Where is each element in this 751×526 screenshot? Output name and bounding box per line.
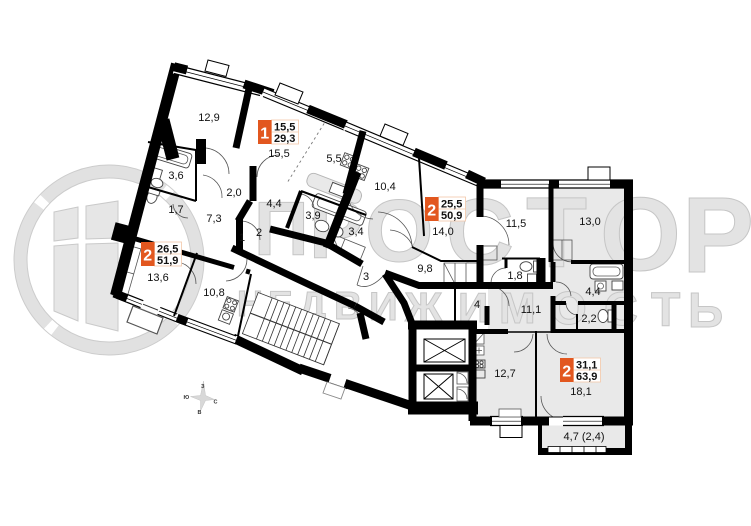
svg-text:26,5: 26,5: [157, 244, 178, 256]
svg-text:2: 2: [143, 248, 152, 265]
svg-text:4: 4: [474, 299, 480, 311]
svg-text:1: 1: [239, 232, 245, 244]
svg-text:15,5: 15,5: [274, 122, 295, 134]
svg-text:2: 2: [427, 203, 436, 220]
svg-text:7,3: 7,3: [206, 213, 221, 225]
svg-text:3,6: 3,6: [168, 170, 183, 182]
svg-text:2: 2: [256, 227, 262, 239]
svg-text:2: 2: [562, 364, 571, 381]
svg-text:10,8: 10,8: [203, 287, 224, 299]
svg-text:2,2: 2,2: [581, 313, 596, 325]
svg-text:13,0: 13,0: [579, 216, 600, 228]
svg-text:31,1: 31,1: [576, 360, 597, 372]
svg-text:1,8: 1,8: [507, 270, 522, 282]
svg-text:3,4: 3,4: [348, 226, 363, 238]
svg-text:29,3: 29,3: [274, 133, 295, 145]
svg-text:Ю: Ю: [184, 395, 190, 401]
svg-text:1: 1: [260, 126, 269, 143]
svg-text:14,0: 14,0: [432, 226, 453, 238]
svg-text:10,4: 10,4: [374, 181, 395, 193]
svg-text:51,9: 51,9: [157, 255, 178, 267]
svg-text:18,1: 18,1: [570, 386, 591, 398]
svg-text:В: В: [198, 410, 202, 416]
svg-text:З: З: [201, 384, 205, 390]
svg-text:1,7: 1,7: [168, 204, 183, 216]
svg-text:12,9: 12,9: [198, 112, 219, 124]
svg-text:50,9: 50,9: [441, 210, 462, 222]
svg-text:5,5: 5,5: [326, 153, 341, 165]
svg-text:11,5: 11,5: [506, 218, 527, 230]
svg-text:3: 3: [363, 271, 369, 283]
svg-text:2,0: 2,0: [226, 187, 241, 199]
svg-text:63,9: 63,9: [576, 371, 597, 383]
svg-text:Р: Р: [682, 174, 751, 295]
svg-text:15,5: 15,5: [268, 148, 289, 160]
svg-text:4,7 (2,4): 4,7 (2,4): [564, 431, 605, 443]
svg-text:Ь: Ь: [688, 284, 723, 338]
svg-text:4,4: 4,4: [266, 198, 281, 210]
svg-text:4,4: 4,4: [585, 286, 600, 298]
svg-text:11,1: 11,1: [521, 304, 542, 316]
svg-text:13,6: 13,6: [147, 272, 168, 284]
svg-text:25,5: 25,5: [441, 199, 462, 211]
svg-text:С: С: [214, 400, 218, 406]
svg-text:3,9: 3,9: [305, 210, 320, 222]
svg-text:9,8: 9,8: [417, 263, 432, 275]
svg-text:Т: Т: [651, 284, 680, 337]
svg-text:12,7: 12,7: [494, 368, 515, 380]
